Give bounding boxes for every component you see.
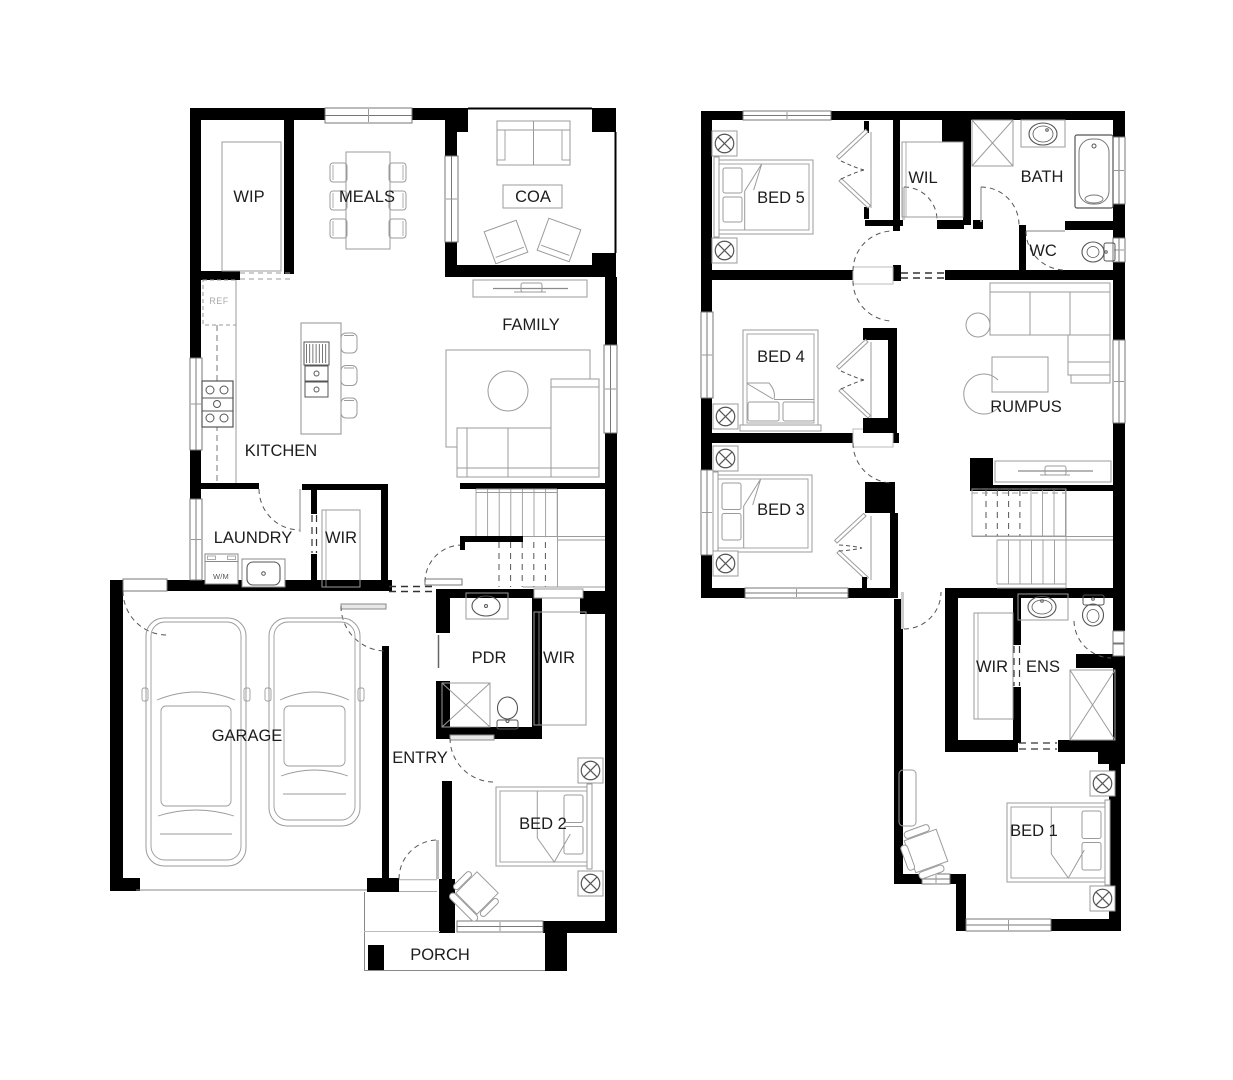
svg-text:WIR: WIR: [325, 529, 357, 547]
svg-text:PDR: PDR: [472, 649, 507, 667]
svg-text:BED 3: BED 3: [757, 501, 805, 519]
svg-text:WIP: WIP: [233, 188, 264, 206]
svg-text:BATH: BATH: [1021, 168, 1064, 186]
svg-text:WIR: WIR: [543, 649, 575, 667]
svg-text:PORCH: PORCH: [410, 946, 470, 964]
svg-text:RUMPUS: RUMPUS: [990, 398, 1062, 416]
svg-text:BED 4: BED 4: [757, 348, 805, 366]
svg-text:ENS: ENS: [1026, 658, 1060, 676]
svg-text:BED 5: BED 5: [757, 189, 805, 207]
svg-text:MEALS: MEALS: [339, 188, 395, 206]
svg-text:WC: WC: [1029, 242, 1057, 260]
svg-text:GARAGE: GARAGE: [212, 727, 283, 745]
svg-text:LAUNDRY: LAUNDRY: [214, 529, 293, 547]
svg-text:W/M: W/M: [213, 572, 229, 581]
svg-text:FAMILY: FAMILY: [502, 316, 559, 334]
svg-text:KITCHEN: KITCHEN: [245, 442, 317, 460]
svg-text:WIL: WIL: [908, 169, 937, 187]
svg-text:WIR: WIR: [976, 658, 1008, 676]
svg-text:BED 2: BED 2: [519, 815, 567, 833]
svg-text:BED 1: BED 1: [1010, 822, 1058, 840]
svg-text:REF: REF: [209, 296, 229, 306]
svg-text:COA: COA: [515, 188, 551, 206]
svg-text:ENTRY: ENTRY: [392, 749, 448, 767]
